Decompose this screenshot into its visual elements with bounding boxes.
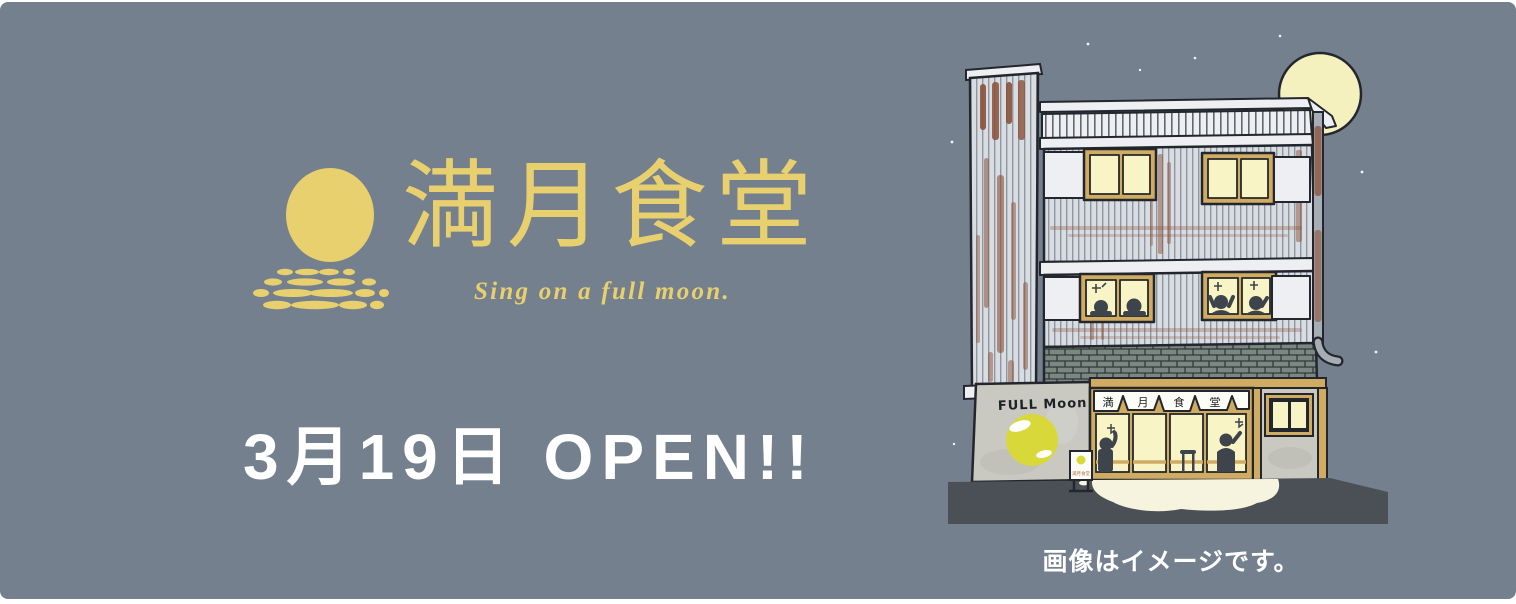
- open-date-announcement: 3月19日 OPEN!!: [243, 406, 816, 498]
- moon-reflection-icon: [245, 164, 395, 316]
- wall-sign-text: FULL Moon: [998, 396, 1088, 414]
- full-moon-shape: [286, 168, 374, 262]
- ground-floor: FULL Moon: [972, 378, 1327, 482]
- building-facade: [1040, 98, 1336, 385]
- noren-character: 堂: [1210, 396, 1221, 409]
- logo-title: 満月食堂: [402, 152, 821, 262]
- noren-character: 満: [1103, 396, 1114, 409]
- noren-curtain: [1094, 391, 1249, 411]
- noren-character: 食: [1174, 395, 1185, 409]
- banner-page: 満月食堂 Sing on a full moon. 3月19日 OPEN!!: [0, 0, 1516, 604]
- left-signboard-pillar: [964, 64, 1042, 399]
- building-illustration: FULL Moon: [940, 30, 1390, 540]
- sign-board-moon-icon: [1077, 456, 1086, 465]
- water-reflection-ripples: [253, 269, 389, 309]
- noren-character: 月: [1138, 396, 1149, 409]
- side-window: [1265, 394, 1313, 436]
- banner: 満月食堂 Sing on a full moon. 3月19日 OPEN!!: [0, 2, 1516, 599]
- wall-moon-icon: [1006, 414, 1058, 466]
- image-disclaimer-caption: 画像はイメージです。: [1021, 542, 1321, 578]
- logo-tagline: Sing on a full moon.: [474, 278, 731, 306]
- downspout-pipe: [1313, 112, 1338, 361]
- sign-board-text: 満月食堂: [1072, 470, 1090, 477]
